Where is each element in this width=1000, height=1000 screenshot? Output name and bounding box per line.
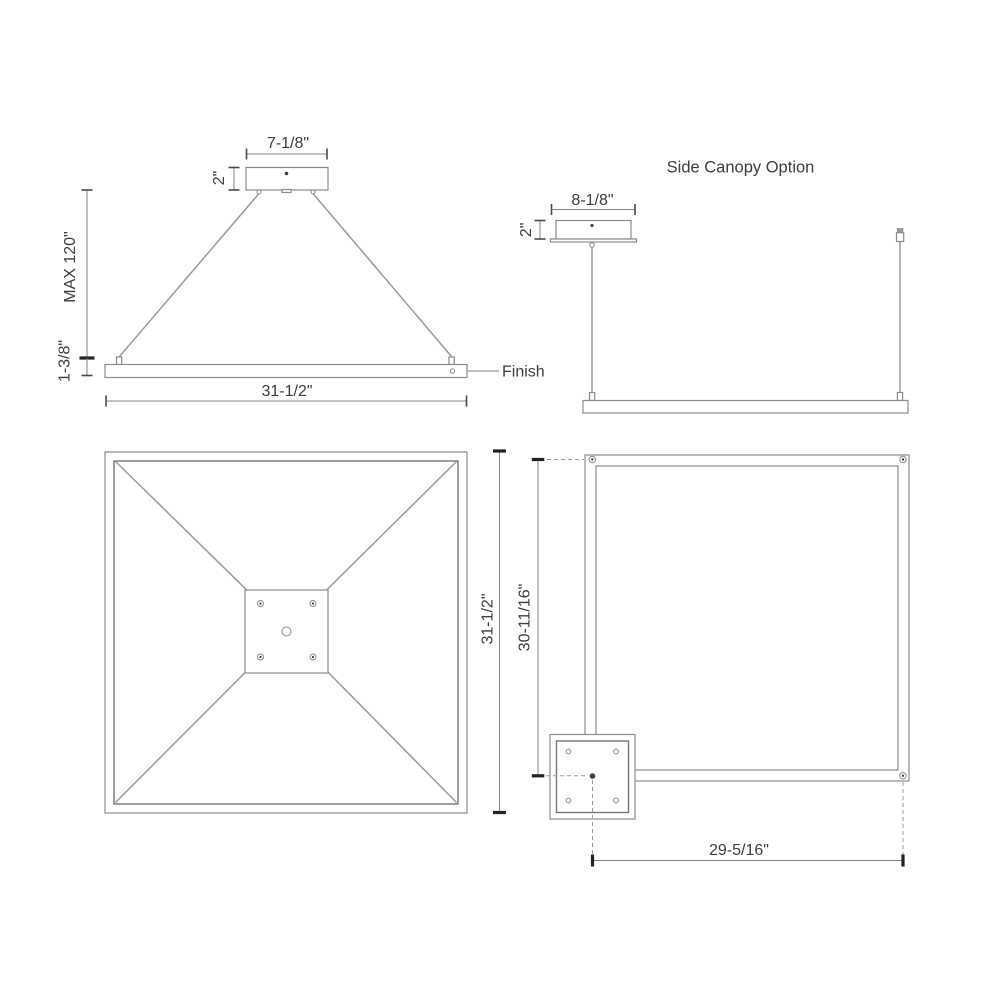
line-drawing: 7-1/8" 2" Finish MAX 1 xyxy=(0,0,1000,1000)
side-canopy-height-label: 2" xyxy=(518,223,535,238)
canopy-center-hole-icon xyxy=(282,627,291,636)
max-suspension-label: MAX 120" xyxy=(62,231,79,303)
suspension-cable-right xyxy=(313,194,452,357)
dim-side-canopy-height: 2" xyxy=(518,221,545,240)
suspension-cable-left xyxy=(120,194,260,357)
plan-view-center-canopy: 31-1/2" xyxy=(105,451,506,813)
cable-fitting-icon xyxy=(590,393,595,401)
front-canopy-width-label: 7-1/8" xyxy=(267,135,309,152)
cable-fitting-icon xyxy=(897,393,902,401)
dim-side-canopy-width: 8-1/8" xyxy=(552,192,636,215)
dim-max-suspension: MAX 120" xyxy=(62,190,94,358)
front-canopy-stem xyxy=(282,190,291,193)
plan-cable xyxy=(316,462,457,602)
plan-cable xyxy=(116,462,259,602)
side-canopy xyxy=(556,221,631,240)
dim-side-plan-horizontal: 29-5/16" xyxy=(593,842,904,867)
side-canopy-title: Side Canopy Option xyxy=(667,159,815,177)
frame-outer-edge xyxy=(585,455,909,781)
cable-fitting-icon xyxy=(117,357,122,365)
plan-cable xyxy=(116,660,259,803)
side-canopy-plate xyxy=(551,239,637,242)
front-canopy-height-label: 2" xyxy=(211,171,228,186)
dim-plan-depth: 31-1/2" xyxy=(480,451,506,813)
plan-depth-label: 31-1/2" xyxy=(480,593,497,644)
frame-corner-cable-points xyxy=(589,456,906,779)
finish-callout-point-icon xyxy=(450,369,454,373)
spec-sheet-drawing: 7-1/8" 2" Finish MAX 1 xyxy=(0,0,1000,1000)
side-plan-vertical-label: 30-11/16" xyxy=(517,584,534,652)
dim-front-canopy-width: 7-1/8" xyxy=(247,135,328,160)
dim-front-canopy-height: 2" xyxy=(211,168,239,191)
canopy-screw-icon xyxy=(590,224,593,227)
cable-gripper-icon xyxy=(897,233,904,242)
fixture-width-label: 31-1/2" xyxy=(261,383,312,400)
side-light-bar xyxy=(583,401,908,414)
side-canopy-view: Side Canopy Option 8-1/8" 2" xyxy=(518,159,908,414)
cable-gripper-icon xyxy=(590,243,595,248)
finish-label: Finish xyxy=(502,364,545,381)
dim-fixture-width: 31-1/2" xyxy=(106,383,467,407)
fixture-height-label: 1-3/8" xyxy=(57,340,74,382)
canopy-center-point-icon xyxy=(590,773,596,779)
side-canopy-width-label: 8-1/8" xyxy=(571,192,613,209)
plan-cable xyxy=(316,660,457,803)
side-plan-horizontal-label: 29-5/16" xyxy=(709,842,769,859)
frame-inner-edge xyxy=(596,466,898,770)
front-light-bar xyxy=(105,365,467,378)
front-canopy xyxy=(246,168,328,191)
ceiling-cap-icon xyxy=(897,229,903,233)
dim-side-plan-vertical: 30-11/16" xyxy=(517,460,545,776)
plan-view-side-canopy: 30-11/16" 29-5/16" xyxy=(517,455,909,867)
cable-fitting-icon xyxy=(449,357,454,365)
cable-attach-icon xyxy=(311,190,315,194)
cable-attach-icon xyxy=(257,190,261,194)
canopy-screw-icon xyxy=(285,172,289,176)
front-elevation-view: 7-1/8" 2" Finish MAX 1 xyxy=(57,135,545,407)
